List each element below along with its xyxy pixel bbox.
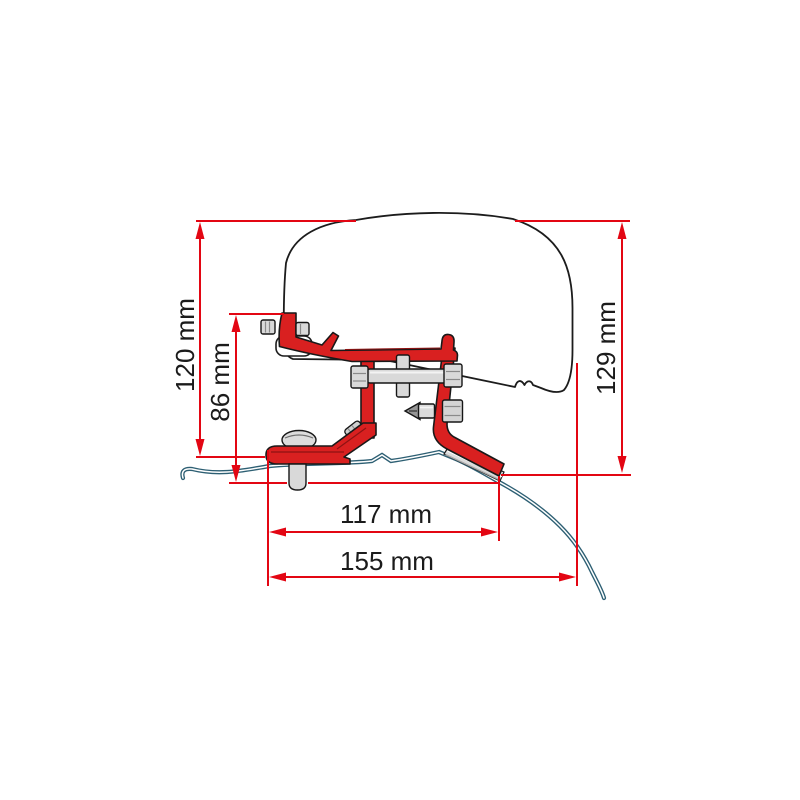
dimension-label-129mm: 129 mm bbox=[593, 293, 619, 403]
technical-diagram-svg bbox=[0, 0, 800, 800]
rod-left-nut bbox=[351, 366, 368, 388]
foot-bolt-shaft bbox=[289, 464, 306, 490]
screw-shaft bbox=[419, 404, 435, 418]
cross-rod bbox=[367, 369, 449, 383]
rod-right-nut bbox=[444, 364, 462, 387]
t-bolt-stem-bottom bbox=[397, 382, 410, 397]
page: 120 mm 86 mm 129 mm 117 mm 155 mm bbox=[0, 0, 800, 800]
awning-case-outline bbox=[276, 213, 573, 392]
dimension-label-120mm: 120 mm bbox=[172, 290, 198, 400]
top-bolt-nut bbox=[296, 323, 309, 336]
t-bolt-stem-top bbox=[397, 355, 410, 370]
dimension-label-86mm: 86 mm bbox=[207, 327, 233, 437]
screw-sleeve bbox=[443, 400, 463, 422]
dimension-label-155mm: 155 mm bbox=[332, 548, 442, 574]
dimension-label-117mm: 117 mm bbox=[331, 501, 441, 527]
top-bolt-head bbox=[261, 320, 275, 334]
